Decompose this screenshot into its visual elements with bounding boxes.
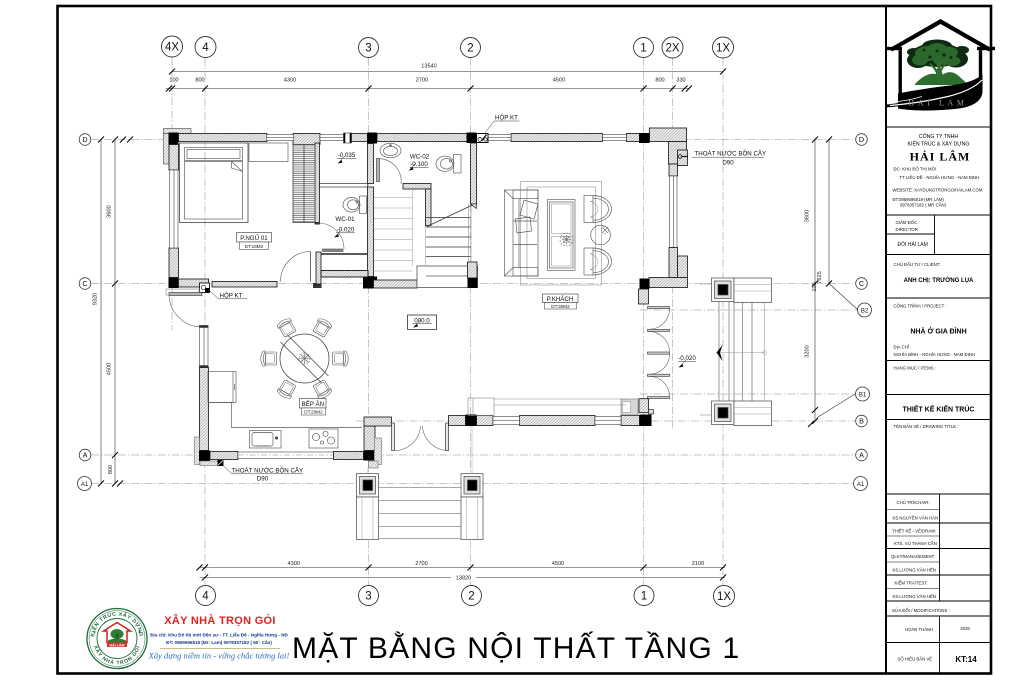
svg-text:THOÁT NƯỚC BỒN CÂY: THOÁT NƯỚC BỒN CÂY (695, 151, 767, 158)
svg-text:KS.LƯƠNG VĂN HẾN: KS.LƯƠNG VĂN HẾN (893, 594, 936, 599)
svg-text:B1: B1 (859, 393, 867, 399)
svg-text:D: D (859, 135, 864, 144)
svg-text:DIRECTOR: DIRECTOR (896, 227, 918, 232)
svg-text:KS.NGUYỄN VĂN HÂN: KS.NGUYỄN VĂN HÂN (893, 516, 939, 521)
svg-text:MẶT BẰNG NỘI THẤT TẦNG 1: MẶT BẰNG NỘI THẤT TẦNG 1 (292, 631, 740, 665)
svg-text:100: 100 (169, 78, 178, 84)
svg-text:100: 100 (812, 282, 818, 291)
svg-text:BẾP ĂN: BẾP ĂN (302, 401, 325, 408)
svg-text:800: 800 (195, 78, 204, 84)
svg-text:THOÁT NƯỚC BỒN CÂY: THOÁT NƯỚC BỒN CÂY (232, 468, 304, 475)
svg-text:7625: 7625 (817, 271, 823, 283)
svg-text:-0.035: -0.035 (338, 152, 356, 159)
svg-text:4500: 4500 (552, 561, 564, 567)
svg-text:13820: 13820 (456, 576, 472, 582)
svg-text:2X: 2X (665, 43, 679, 55)
svg-text:1: 1 (640, 43, 646, 55)
svg-text:4: 4 (202, 42, 209, 54)
svg-text:3600: 3600 (107, 205, 113, 217)
svg-text:2100: 2100 (692, 561, 704, 567)
svg-text:ĐC: KHU ĐÔ THỊ MỚI: ĐC: KHU ĐÔ THỊ MỚI (894, 167, 937, 172)
svg-text:NGHĨA BÌNH - NGHĨA HƯNG - NAM: NGHĨA BÌNH - NGHĨA HƯNG - NAM ĐỊNH (894, 352, 976, 357)
svg-text:3: 3 (365, 43, 371, 55)
svg-text:NHÀ Ở GIA ĐÌNH: NHÀ Ở GIA ĐÌNH (910, 327, 966, 336)
svg-text:DT:30M2: DT:30M2 (551, 304, 570, 309)
svg-text:2700: 2700 (415, 561, 427, 567)
svg-text:C: C (82, 279, 87, 288)
svg-text:B: B (859, 417, 864, 426)
svg-text:4300: 4300 (288, 561, 300, 567)
svg-text:P.KHÁCH: P.KHÁCH (547, 296, 574, 303)
svg-text:4300: 4300 (284, 78, 296, 84)
svg-text:KTS. VŨ THANH CẦN: KTS. VŨ THANH CẦN (894, 541, 937, 546)
svg-text:2700: 2700 (416, 78, 428, 84)
svg-text:330: 330 (676, 78, 685, 84)
svg-text:000.0: 000.0 (414, 317, 430, 324)
svg-text:ĐT:0969696818-(MR LÂM): ĐT:0969696818-(MR LÂM) (893, 197, 945, 202)
svg-text:4X: 4X (165, 42, 179, 54)
svg-text:ĐT: 0969696818 (Mr: Lam) 0978: ĐT: 0969696818 (Mr: Lam) 0978357182 ( Mr… (166, 640, 272, 645)
svg-text:A1: A1 (857, 482, 865, 488)
svg-text:XÂY NHÀ TRỌN GÓI: XÂY NHÀ TRỌN GÓI (164, 614, 276, 627)
svg-text:WC-01: WC-01 (335, 216, 355, 223)
svg-text:1: 1 (641, 591, 647, 603)
svg-text:B2: B2 (861, 309, 869, 315)
svg-text:HẠNG MỤC / ITEMS :: HẠNG MỤC / ITEMS : (894, 366, 937, 371)
svg-text:HOÀN THÀNH: HOÀN THÀNH (905, 627, 933, 632)
svg-text:2: 2 (467, 43, 473, 55)
svg-text:KIẾN TRÚC & XÂY DỰNG: KIẾN TRÚC & XÂY DỰNG (908, 141, 970, 148)
svg-text:2025: 2025 (960, 626, 970, 631)
svg-text:4500: 4500 (107, 363, 113, 375)
svg-text:CÔNG TY TNHH: CÔNG TY TNHH (919, 133, 958, 140)
svg-text:HỘP KT: HỘP KT (220, 293, 243, 300)
svg-text:DT:20M2: DT:20M2 (304, 410, 323, 415)
svg-text:HỘP KT: HỘP KT (495, 115, 518, 122)
svg-text:WC-02: WC-02 (410, 153, 430, 160)
svg-text:3600: 3600 (805, 210, 811, 222)
svg-text:CHỦ ĐẦU TƯ / CLIENT:: CHỦ ĐẦU TƯ / CLIENT: (894, 262, 941, 267)
svg-text:HẢI LÂM: HẢI LÂM (110, 642, 125, 647)
svg-text:SỬA ĐỔI / MODIFICATIONS :: SỬA ĐỔI / MODIFICATIONS : (892, 608, 950, 613)
svg-text:GIÁM ĐỐC :: GIÁM ĐỐC : (896, 220, 920, 225)
svg-text:SỐ HIỆU BẢN VẼ: SỐ HIỆU BẢN VẼ (898, 657, 933, 662)
svg-text:CÔNG TRÌNH / PROJECT :: CÔNG TRÌNH / PROJECT : (894, 304, 947, 309)
svg-text:Xây dựng niềm tin - vững chắc: Xây dựng niềm tin - vững chắc tương lai! (148, 651, 290, 661)
svg-text:HAI LAM: HAI LAM (908, 99, 967, 108)
svg-text:-0.020: -0.020 (678, 355, 696, 362)
svg-text:1X: 1X (716, 43, 730, 55)
svg-text:THIẾT KẾ - VẼ/DRAW:: THIẾT KẾ - VẼ/DRAW: (892, 529, 936, 534)
svg-text:D90: D90 (257, 476, 269, 483)
svg-text:P.NGỦ 01: P.NGỦ 01 (240, 235, 268, 242)
svg-text:A: A (859, 451, 864, 460)
svg-text:TT LIỄU ĐỀ - NGHĨA HƯNG - NAM: TT LIỄU ĐỀ - NGHĨA HƯNG - NAM ĐỊNH (900, 175, 980, 180)
svg-text:D: D (82, 135, 87, 144)
svg-text:Địa chỉ: Khu Đô thị mới Đền sư: Địa chỉ: Khu Đô thị mới Đền sư - TT. Liễ… (150, 632, 288, 638)
svg-text:800: 800 (655, 78, 664, 84)
svg-text:9320: 9320 (93, 293, 99, 305)
svg-text:13540: 13540 (421, 64, 437, 70)
svg-text:HẢI LÂM: HẢI LÂM (910, 150, 971, 164)
svg-text:ĐỊA CHỈ :: ĐỊA CHỈ : (894, 345, 912, 350)
svg-text:DT:18M2: DT:18M2 (245, 244, 264, 249)
svg-text:TÊN BẢN VẼ / DRAWING TITLE :: TÊN BẢN VẼ / DRAWING TITLE : (894, 424, 959, 429)
svg-text:KS.LƯƠNG VĂN HẾN: KS.LƯƠNG VĂN HẾN (893, 568, 936, 573)
svg-text:3200: 3200 (805, 345, 811, 357)
svg-text:QLKT/MANAGEMENT:: QLKT/MANAGEMENT: (891, 554, 935, 559)
svg-text:A: A (83, 451, 88, 460)
svg-text:ANH CHỊ: TRƯỜNG LỤA: ANH CHỊ: TRƯỜNG LỤA (904, 276, 974, 284)
svg-text:-0.020: -0.020 (337, 227, 355, 234)
svg-text:D90: D90 (722, 160, 734, 167)
svg-text:1X: 1X (717, 591, 731, 603)
svg-text:-0.100: -0.100 (410, 161, 428, 168)
svg-text:A1: A1 (81, 482, 89, 488)
svg-text:4500: 4500 (553, 78, 565, 84)
svg-text:KIỂM TRA/TEST:: KIỂM TRA/TEST: (895, 581, 928, 586)
svg-text:2: 2 (468, 591, 474, 603)
svg-text:C: C (859, 279, 864, 288)
svg-text:0978357182 ( MR CẦN): 0978357182 ( MR CẦN) (900, 203, 947, 208)
svg-text:WEBSITE :XAYDUNGTRONGOIHAILAM.: WEBSITE :XAYDUNGTRONGOIHAILAM.COM (893, 188, 983, 193)
svg-text:KT:14: KT:14 (955, 655, 977, 664)
svg-text:3: 3 (365, 591, 371, 603)
svg-text:4: 4 (202, 591, 209, 603)
svg-text:CHỦ TRÌ/CHAIR:: CHỦ TRÌ/CHAIR: (897, 500, 930, 505)
svg-text:800: 800 (108, 465, 114, 474)
svg-text:ĐỖI HẢI LAM: ĐỖI HẢI LAM (898, 241, 928, 248)
